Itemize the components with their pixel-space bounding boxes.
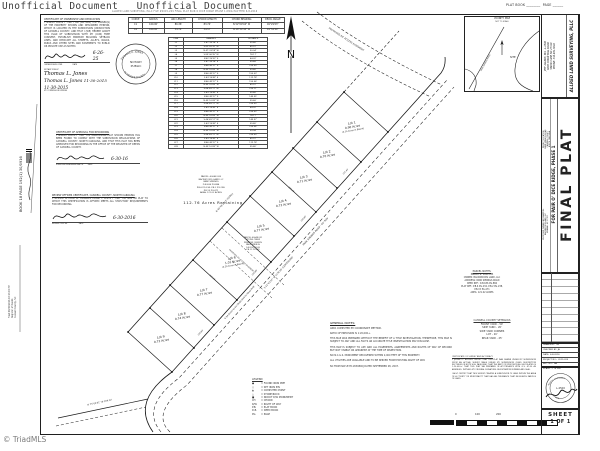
certificate-review-caption: REVIEW OFFICER DATE	[52, 222, 148, 226]
north-label: N	[287, 48, 295, 61]
survey-certificate-body2: I ALSO CERTIFY THAT THIS SURVEY CREATES …	[452, 373, 536, 380]
general-note: NC FIRM MAP #3711830800J DATED SEPTEMBER…	[330, 366, 452, 369]
general-note: NO N.C.G.S. MONUMENT RECOVERED WITHIN 2,…	[330, 355, 452, 358]
setbacks-block: CASWELL COUNTY SETBACKS FRONT YARD - 50'…	[452, 319, 532, 340]
general-note: RATIO OF PRECISION IS 1:20,000+.	[330, 333, 452, 336]
surveyor-seal: NORTH CAROLINA SEAL L-4500	[542, 367, 579, 409]
vicinity-subtitle: NOT TO SCALE	[465, 21, 539, 23]
lot-label-3: Lot 3 0.71 Acres	[296, 174, 313, 184]
front-dim-3: 150.06'	[301, 215, 308, 222]
recording-signature-date: 6-30-16	[111, 157, 128, 163]
setback-line: REAR YARD - 25'	[452, 337, 532, 341]
certificate-review-signature-row: 6-30-2016	[52, 209, 148, 222]
owner-signature-date: 6-26-25	[93, 51, 110, 63]
lot-labels: Lot 1 0.90 Acres (0.14 Acres in Easmt) L…	[153, 119, 365, 344]
general-note: THIS MAP WAS PREPARED WITHOUT THE BENEFI…	[330, 338, 452, 344]
surveyor-seal-signature	[546, 389, 577, 397]
recording-signature-squiggle	[56, 152, 108, 163]
certificate-recording-body: I HEREBY CERTIFY THAT THE SUBDIVISION PL…	[56, 135, 140, 150]
vicinity-road-label: PARK SPRINGS ROAD	[480, 53, 492, 72]
remaining-parcel-note: PARCEL #0048 035BACKWOODS LAND LLCPARK S…	[182, 176, 240, 195]
parcel-notes: PARCEL NOTES: PARCEL #: 0048 035OWNER: B…	[444, 270, 520, 295]
titleblock-revisions-box: REVISIONS	[541, 272, 580, 344]
owner-info-3: MEBANE, NC 27302	[547, 182, 549, 266]
revisions-divider	[551, 273, 552, 343]
vicinity-north-arrow	[500, 40, 503, 55]
review-signature-squiggle	[52, 209, 110, 222]
notary-signature-1: Thomas L. Jones	[44, 71, 110, 78]
general-notes-title: GENERAL NOTES:	[330, 322, 452, 326]
scale-label-100: 100	[475, 413, 480, 416]
parcel-notes-lines: PARCEL #: 0048 035OWNER: BACKWOODS LAND,…	[444, 274, 520, 295]
road-dedication-label: 0.94 Acres to be Dedicated to Road R/W	[224, 285, 256, 320]
acres-remaining-label: 112.76 Acres Remaining	[168, 200, 258, 205]
lot-label-2: Lot 2 0.70 Acres	[319, 149, 336, 159]
legend-item: PG. = PAGE	[252, 413, 334, 416]
scale-bar-stub	[430, 420, 454, 425]
lot-label-9: Lot 9 0.72 Acres	[153, 334, 170, 344]
vicinity-site-label: SITE	[510, 55, 516, 59]
lot-label-7: Lot 7 0.77 Acres	[196, 287, 213, 297]
sheet-number-box: SHEET 1 OF 1	[541, 408, 580, 435]
certificate-review-body: I, REVIEW OFFICER OF CASWELL COUNTY, CER…	[52, 198, 148, 207]
surveyor-firm-details: JEFF ALLRED, PLS - L-4500 6065 COBLE MIL…	[544, 17, 556, 95]
notary-block: NOTARY PUBLIC Thomas L. Jones Thomas L. …	[44, 69, 110, 93]
notary-seal-bottom-text: ALAMANCE COUNTY	[123, 71, 146, 80]
curve-table-row: C2 100.00' 34.74' 34.57' N 18°39'38" W 1…	[129, 28, 285, 33]
notary-signature-2: Thomas L. Jones 11-30-2015	[44, 78, 110, 85]
certificate-recording-signature-row: 6-30-16	[56, 152, 140, 163]
general-notes: GENERAL NOTES: AREA COMPUTED BY COORDINA…	[330, 322, 452, 371]
lot-label-5: Lot 5 0.77 Acres	[253, 223, 270, 233]
rear-boundary-extension	[344, 31, 399, 92]
notary-seal: THOMAS E. JONES ALAMANCE COUNTY NOTARY P…	[112, 38, 160, 86]
remaining-parcel-line: AREA: 121.02 ACRES	[182, 192, 240, 195]
vicinity-roads: SITE PARK SPRINGS ROAD	[465, 25, 539, 91]
legend: LEGEND ● = FOUND IRON PIPE ○ = SET IRON …	[252, 378, 334, 416]
survey-accuracy-certificate: CERTIFICATE OF SURVEY AND ACCURACY I, JE…	[452, 356, 536, 380]
church-parcel-line: P.B.11 PG.289	[231, 249, 275, 251]
svg-text:0.77 Acres: 0.77 Acres	[197, 290, 213, 297]
svg-text:0.72 Acres: 0.72 Acres	[276, 201, 292, 208]
road-name-label: PARK SPRINGS ROAD - 60' R/W	[302, 217, 329, 247]
stamp-strip-lines	[20, 104, 37, 332]
line-table: LINE BEARING DISTANCE L1 S 47°33'28" E 3…	[168, 37, 268, 149]
general-note: THIS MAP IS SUBJECT TO ANY AND ALL EASEM…	[330, 347, 452, 353]
bottom-bearing-label: N 73°04'41" W 284.32'	[87, 398, 113, 406]
front-dim-1: 150.03'	[198, 329, 205, 336]
certificate-recording: CERTIFICATE OF APPROVAL FOR RECORDING I …	[56, 131, 140, 166]
parcel-notes-line: AREA: 121.02 ACRES	[444, 292, 520, 295]
notary-seal-center-2: PUBLIC	[131, 64, 142, 68]
certificate-ownership-body: I HEREBY CERTIFY THAT I AM (WE ARE) THE …	[44, 22, 110, 48]
surveyor-firm-name: ALLRED LAND SURVEYING, PLLC	[566, 17, 577, 95]
north-arrow: N	[287, 16, 296, 133]
general-note: AREA COMPUTED BY COORDINATE METHOD.	[330, 328, 452, 331]
surveyor-seal-bottom-text: SEAL	[554, 397, 560, 401]
owner-signature-squiggle	[44, 50, 90, 62]
sheet-number: 1 OF 1	[542, 420, 579, 425]
review-signature-date: 6-30-2016	[113, 216, 136, 222]
lot-label-4: Lot 4 0.72 Acres	[275, 198, 292, 208]
general-note: ALL UTILITIES ARE AVAILABLE AND TO BE SE…	[330, 360, 452, 363]
titleblock-seal-box: NORTH CAROLINA SEAL L-4500	[541, 366, 580, 410]
access-easement-dashed	[302, 12, 442, 97]
certificate-ownership-caption: OWNER/DEVELOPER DATE	[44, 62, 110, 66]
curve-table-body: C1 100.00' 86.36' 83.74' N 52°09'04" W 4…	[129, 23, 285, 34]
svg-text:0.74 Acres: 0.74 Acres	[175, 314, 191, 321]
project-location-block: PROJECT LOCATION: PARK SPRINGS ROAD CASW…	[543, 102, 551, 176]
scale-label-0: 0	[455, 413, 457, 416]
line-table-row: L28 N 43°10'43" W 35.80'	[169, 145, 268, 149]
surveyor-seal-number: L-4500	[556, 386, 565, 390]
sheet-label: SHEET	[542, 412, 579, 418]
scale-label-200: 200	[496, 413, 501, 416]
vicinity-map: VICINITY MAP NOT TO SCALE SITE PARK SPRI…	[464, 16, 540, 92]
certificate-recording-caption: SUBDIVISION ADMINISTRATOR DATE	[56, 163, 140, 167]
line-table-body: L1 S 47°33'28" E 35.80' L2 S 42°26'32" W…	[169, 41, 268, 148]
owner-info-block: PROPOSED OWNER INFORMATION: BACKWOODS LA…	[543, 182, 549, 266]
legend-title: LEGEND	[252, 378, 334, 382]
scanned-plat-document: Unofficial Document Unofficial Document …	[0, 0, 600, 451]
division-dim-2: 299.58'	[288, 187, 295, 194]
church-parcel-note: PARCEL #0048 031MOONS CREEKPRIMITIVE CHU…	[231, 237, 275, 252]
project-location-4: NORTH CAROLINA	[549, 102, 551, 176]
legend-symbol: PG.	[252, 413, 261, 416]
revisions-header: REVISIONS	[542, 273, 579, 275]
setbacks-lines: FRONT YARD - 50'SIDE YARD - 20'SIDE YARD…	[452, 323, 532, 341]
legend-text: = PAGE	[261, 413, 270, 416]
access-easement-label: PROPOSED 60' ACCESS EASEMENT	[328, 27, 365, 52]
front-dim-4: 155.43'	[343, 168, 350, 175]
titleblock-fields-box: DRAWN BY:TW CHECKED BY:JA DATE:6-8-2016 …	[541, 342, 580, 368]
surveyor-line-4: PHONE: 336-684-8202	[553, 17, 556, 95]
legend-items: ● = FOUND IRON PIPE ○ = SET IRON PIN ▲ =…	[252, 382, 334, 416]
division-dim-1: 305.96'	[209, 275, 216, 282]
final-plat-title: FINAL PLAT	[557, 101, 577, 268]
notary-commission-line: MY COMMISSION EXPIRES	[44, 90, 110, 92]
road-centerline-label: S 41°43'07" W 1178.38' (CENTERLINE)	[263, 256, 294, 290]
svg-text:0.71 Acres: 0.71 Acres	[297, 177, 313, 184]
lot-label-8: Lot 8 0.74 Acres	[174, 311, 191, 321]
triadmls-copyright: © TriadMLS	[3, 435, 46, 444]
certificate-ownership-signature-row: 6-26-25	[44, 50, 110, 62]
survey-certificate-body: I, JEFFREY L. ALLRED, CERTIFY THAT THIS …	[452, 359, 536, 371]
curve-table: CURVE RADIUS ARC LENGTH CHORD LENGTH CHO…	[128, 17, 285, 34]
stamp-signature-squiggle	[28, 152, 31, 200]
svg-text:0.77 Acres: 0.77 Acres	[254, 226, 270, 233]
lot-label-1: Lot 1 0.90 Acres (0.14 Acres in Easmt)	[340, 119, 364, 134]
general-notes-list: AREA COMPUTED BY COORDINATE METHOD.RATIO…	[330, 328, 452, 369]
svg-text:0.70 Acres: 0.70 Acres	[320, 152, 336, 159]
certificate-review-officer: REVIEW OFFICER CERTIFICATE, CASWELL COUN…	[52, 194, 148, 225]
svg-text:0.72 Acres: 0.72 Acres	[154, 337, 170, 344]
certificate-ownership: CERTIFICATE OF OWNERSHIP AND DEDICATION …	[44, 18, 110, 92]
surveyor-seal-top-text: NORTH CAROLINA	[548, 377, 565, 386]
